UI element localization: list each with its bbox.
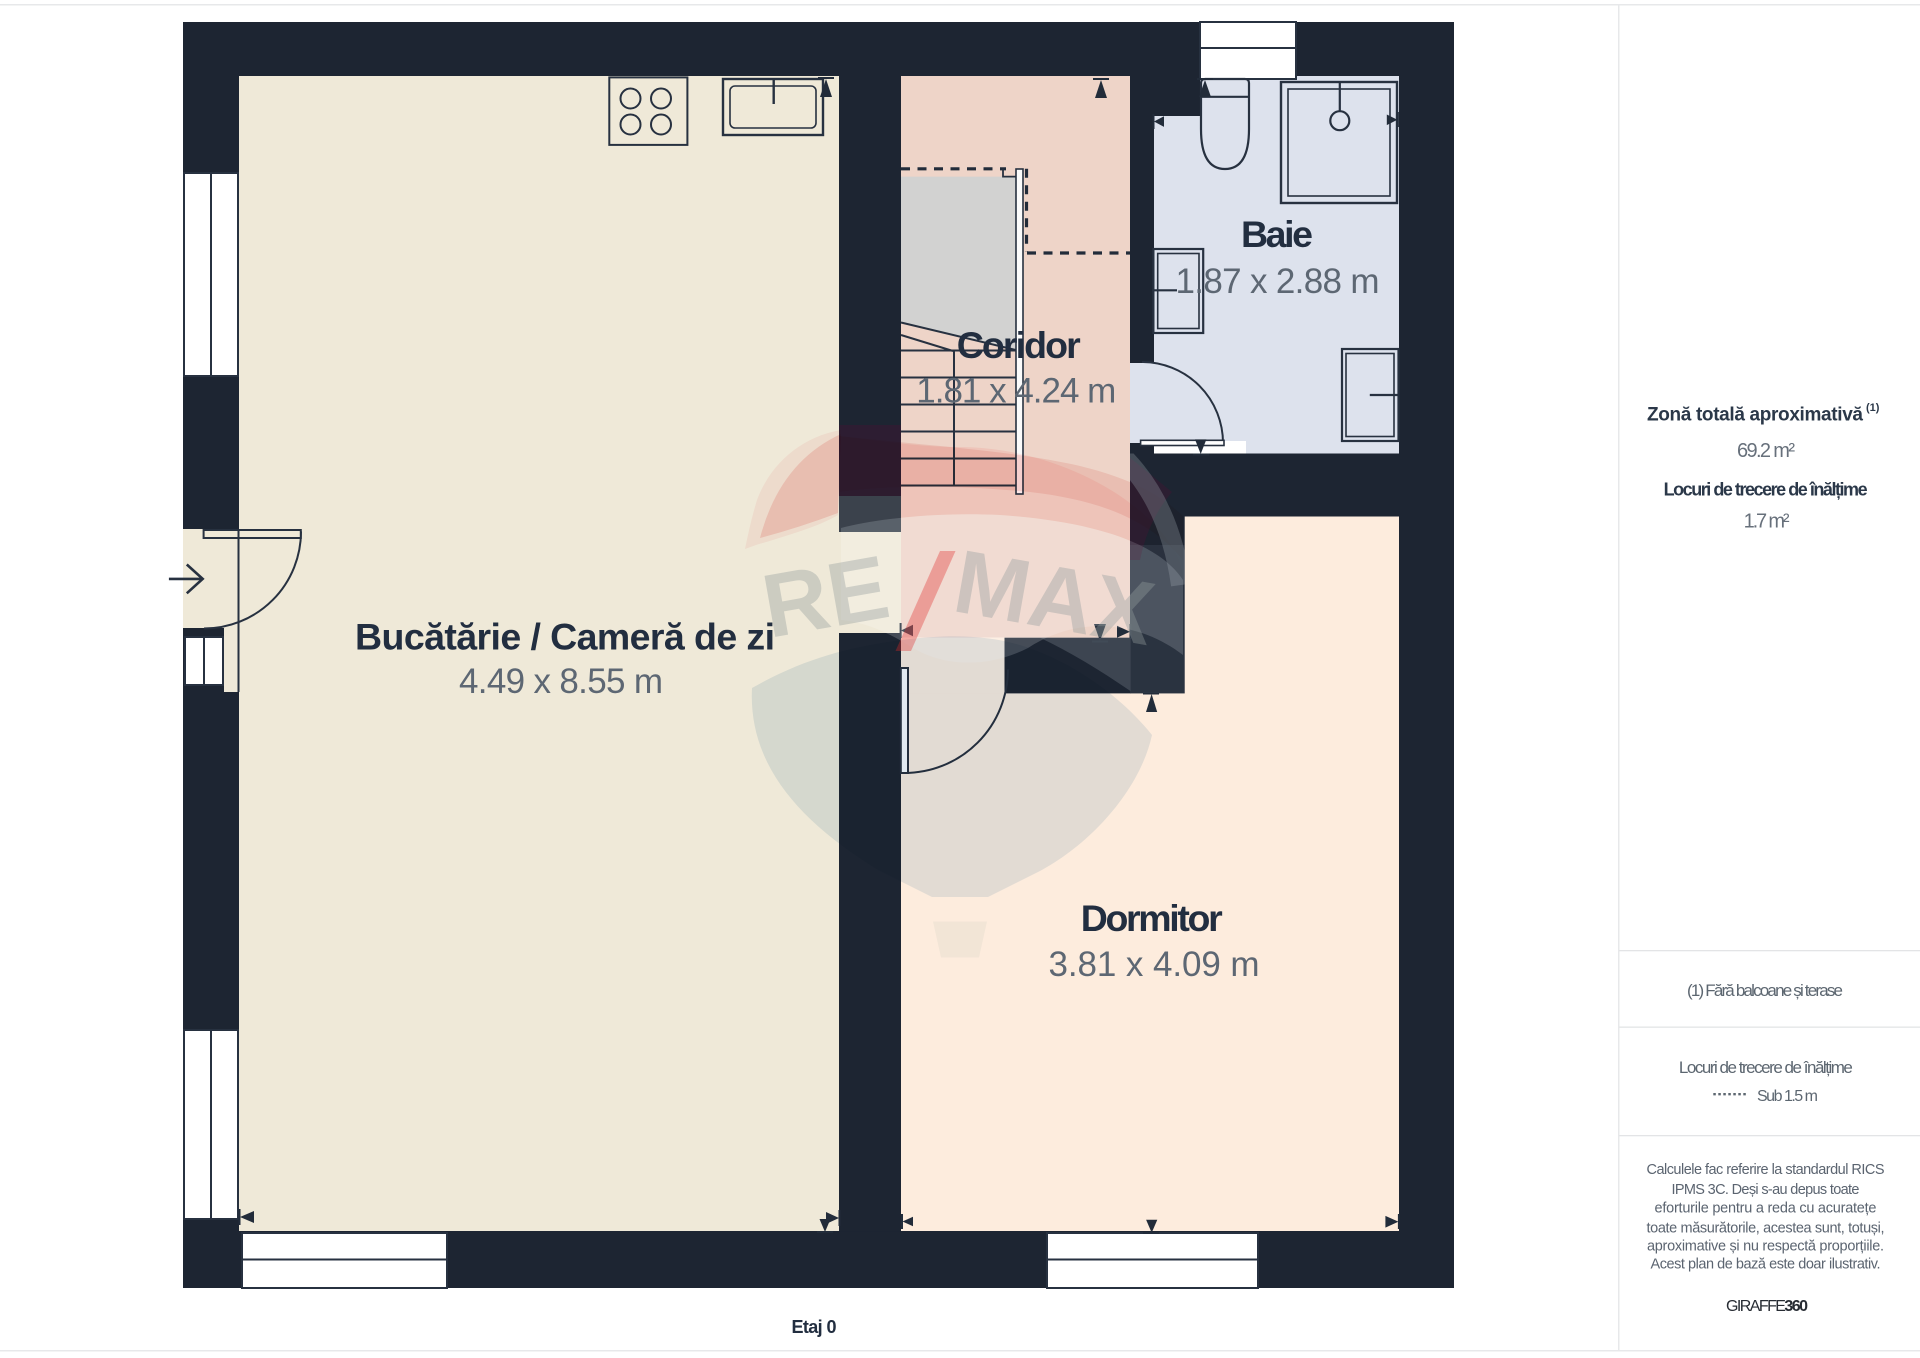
- svg-text:3.81 x 4.09 m: 3.81 x 4.09 m: [1049, 945, 1260, 984]
- svg-text:4.49 x 8.55 m: 4.49 x 8.55 m: [459, 662, 663, 701]
- svg-text:Zonă totală aproximativă: Zonă totală aproximativă: [1647, 405, 1863, 426]
- svg-text:Locuri de trecere de înălțime: Locuri de trecere de înălțime: [1664, 480, 1868, 500]
- svg-text:toate măsurătorile, acestea su: toate măsurătorile, acestea sunt, totuși…: [1647, 1220, 1885, 1236]
- svg-text:RE: RE: [756, 537, 896, 657]
- svg-text:eforturile pentru a reda cu ac: eforturile pentru a reda cu acuratețe: [1655, 1201, 1877, 1217]
- svg-text:Dormitor: Dormitor: [1081, 897, 1223, 939]
- svg-text:Calculele fac referire la stan: Calculele fac referire la standardul RIC…: [1647, 1162, 1885, 1178]
- svg-text:Sub 1.5 m: Sub 1.5 m: [1757, 1088, 1818, 1105]
- svg-text:69.2 m²: 69.2 m²: [1737, 440, 1795, 462]
- svg-text:aproximative și nu respectă pr: aproximative și nu respectă proporțiile.: [1647, 1238, 1884, 1254]
- svg-text:Locuri de trecere de înălțime: Locuri de trecere de înălțime: [1679, 1058, 1853, 1077]
- svg-text:IPMS 3C. Deși s-au depus toate: IPMS 3C. Deși s-au depus toate: [1672, 1182, 1860, 1198]
- svg-text:1.81 x 4.24 m: 1.81 x 4.24 m: [916, 372, 1116, 411]
- svg-text:1.87 x 2.88 m: 1.87 x 2.88 m: [1176, 262, 1380, 301]
- svg-text:(1) Fără balcoane și terase: (1) Fără balcoane și terase: [1687, 981, 1843, 1000]
- svg-text:(1): (1): [1866, 402, 1880, 414]
- svg-text:Coridor: Coridor: [957, 324, 1081, 366]
- svg-text:Bucătărie / Cameră de zi: Bucătărie / Cameră de zi: [355, 615, 775, 657]
- svg-text:Acest plan de bază este doar i: Acest plan de bază este doar ilustrativ.: [1651, 1257, 1881, 1273]
- svg-text:GIRAFFE360: GIRAFFE360: [1726, 1298, 1808, 1315]
- svg-text:Baie: Baie: [1241, 213, 1313, 255]
- svg-text:1.7 m²: 1.7 m²: [1744, 511, 1790, 533]
- svg-text:Etaj 0: Etaj 0: [792, 1317, 837, 1337]
